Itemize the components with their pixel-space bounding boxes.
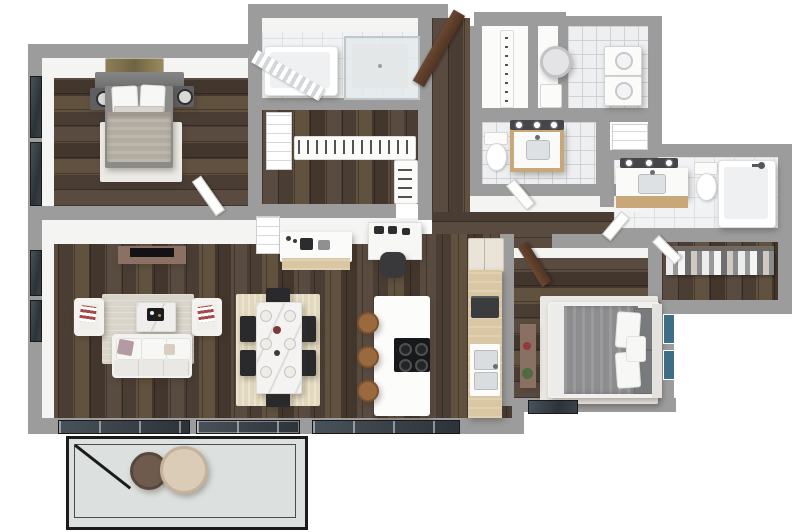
window-living-2 — [30, 300, 42, 342]
toaster — [318, 240, 330, 250]
desk-gadget-2 — [388, 226, 397, 234]
bar-bottle-1 — [286, 236, 291, 241]
closet-hangers-side — [398, 164, 412, 198]
utility-box — [540, 84, 562, 108]
burner-1 — [399, 343, 412, 356]
bar-shelf-unit — [256, 216, 280, 254]
bedroom2-headboard — [652, 304, 662, 398]
dining-chair-right-1 — [300, 316, 316, 342]
bar-stool-2 — [357, 346, 379, 368]
wall-exterior-right-upper — [648, 16, 662, 157]
bar-bottle-2 — [293, 239, 297, 243]
sink-basin-2 — [474, 372, 498, 390]
place-setting-1 — [260, 310, 272, 322]
master-duvet — [107, 112, 171, 162]
window-bottom-center — [312, 420, 460, 434]
lamp-right — [177, 89, 193, 105]
bar-stool-1 — [357, 312, 379, 334]
sofa-pillow-mauve — [117, 339, 134, 356]
dining-chair-right-2 — [300, 350, 316, 376]
wall-master-right — [248, 58, 262, 220]
bar-stool-3 — [357, 380, 379, 402]
closet-hangers-top — [298, 140, 410, 154]
wall-hall-right — [470, 26, 482, 186]
wall-exterior-entry-top — [474, 12, 566, 26]
wall-exterior-bath-left — [248, 4, 262, 58]
dining-chair-left-1 — [240, 316, 256, 342]
place-setting-2 — [284, 310, 296, 322]
wall-exterior-top-master — [28, 44, 252, 58]
burner-3 — [399, 359, 412, 372]
tray-item-gold — [158, 314, 161, 317]
window-bedroom2 — [528, 400, 578, 414]
powder-toilet-bowl — [486, 143, 507, 171]
sofa-back — [114, 360, 190, 376]
coffee-bar-wood-front — [282, 258, 350, 270]
tv — [130, 248, 174, 257]
bath2-vanity-wood — [616, 196, 688, 208]
wall-coat-utility-divider — [528, 26, 538, 110]
bath2-toilet-bowl — [696, 173, 717, 201]
balcony-sliding-door — [196, 420, 300, 434]
kitchen-faucet — [493, 364, 498, 369]
bath2-sink — [638, 174, 666, 194]
office-chair — [380, 252, 406, 278]
wall-exterior-bath2-right — [778, 144, 792, 314]
powder-bulb-3 — [551, 122, 557, 128]
shower-drain — [378, 64, 382, 68]
dining-chair-left-2 — [240, 350, 256, 376]
dining-chair-top — [266, 288, 290, 303]
window-master-1 — [30, 76, 42, 138]
bedroom2-console-accent — [523, 342, 531, 350]
armchair-left-pillow — [79, 305, 97, 323]
wall-exterior-bath2-top — [656, 144, 792, 157]
centerpiece-2 — [274, 350, 280, 356]
window-master-2 — [30, 142, 42, 206]
dining-chair-bottom — [266, 392, 290, 407]
place-setting-3 — [260, 338, 272, 350]
bath2-bulb-1 — [626, 160, 632, 166]
bath2-tub-basin — [724, 167, 768, 219]
desk-gadget-1 — [374, 226, 384, 234]
powder-bulb-1 — [516, 122, 522, 128]
closet-shelf-tower — [266, 112, 292, 170]
place-setting-5 — [260, 366, 272, 378]
espresso-machine — [300, 238, 313, 250]
bath2-bulb-3 — [666, 160, 672, 166]
wall-art-blue-2 — [663, 350, 675, 380]
floor-plan-canvas — [0, 0, 800, 532]
water-heater — [540, 46, 572, 78]
bedroom2-plant — [522, 368, 533, 379]
powder-bulb-2 — [534, 122, 540, 128]
dryer-door — [615, 82, 633, 100]
coffee-table-tray — [147, 308, 164, 321]
burner-2 — [415, 343, 428, 356]
wall-face-master-left — [42, 78, 54, 206]
coat-closet-hooks — [505, 34, 508, 102]
sofa-pillow-beige — [164, 344, 175, 355]
bath2-faucet — [650, 170, 655, 175]
washer-door — [615, 52, 633, 70]
burner-4 — [415, 359, 428, 372]
wall-art-blue-1 — [663, 314, 675, 344]
wall-face-living-top — [42, 220, 262, 244]
tray-item-white — [150, 311, 154, 315]
closet2-clothes — [666, 251, 774, 275]
desk-gadget-3 — [402, 228, 410, 235]
bedroom2-pillow-accent — [626, 336, 646, 362]
wall-under-closets — [470, 108, 658, 122]
balcony-ottoman-cream — [160, 446, 208, 494]
centerpiece-1 — [273, 326, 281, 334]
window-bottom-left — [58, 420, 190, 434]
bath2-shower-head — [758, 162, 765, 169]
refrigerator — [468, 238, 504, 272]
place-setting-6 — [284, 366, 296, 378]
wall-bathroom2-left — [600, 157, 614, 207]
wall-exterior-bath-top — [248, 4, 448, 18]
wall-closet-bottom — [262, 204, 396, 218]
powder-sink — [526, 140, 550, 160]
wall-face-living-left — [42, 244, 54, 418]
window-living-1 — [30, 250, 42, 296]
wall-oven — [471, 296, 499, 318]
refrigerator-door-split — [484, 238, 485, 270]
place-setting-4 — [284, 338, 296, 350]
wall-face-bath-top — [262, 18, 418, 32]
armchair-right-pillow — [197, 305, 215, 323]
linen-shelves — [612, 124, 648, 150]
powder-faucet — [535, 135, 540, 140]
bath2-bulb-2 — [646, 160, 652, 166]
